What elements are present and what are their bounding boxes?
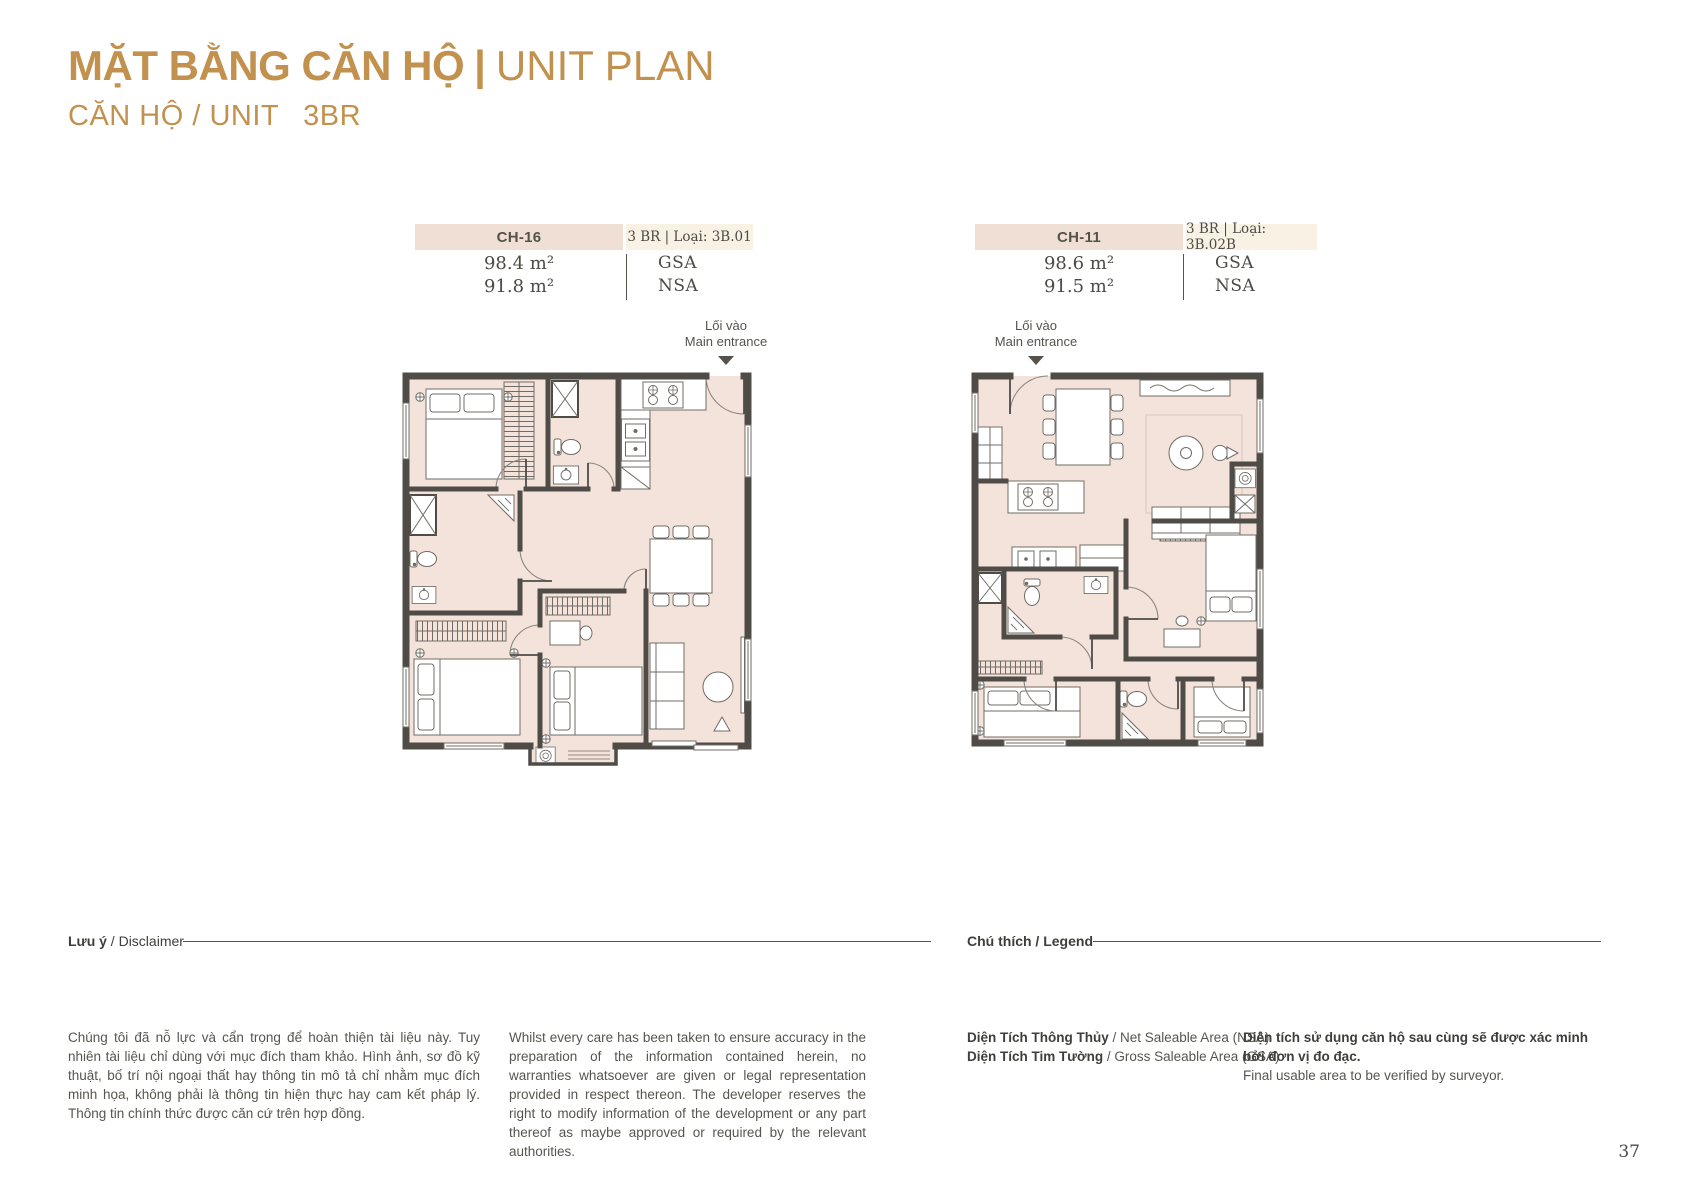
legend-item-gsa-bold: Diện Tích Tim Tường [967, 1049, 1103, 1064]
page-number: 37 [1600, 1142, 1640, 1162]
legend-heading: Chú thích / Legend [967, 933, 1093, 949]
floor-plan-ch11 [968, 369, 1268, 751]
divider [626, 254, 627, 300]
page-subtitle: CĂN HỘ / UNIT3BR [68, 100, 361, 133]
unit-code: CH-11 [975, 224, 1183, 250]
area-labels: GSA NSA [658, 252, 698, 298]
entrance-label-ch16: Lối vào Main entrance [646, 318, 806, 365]
legend-rule [1093, 941, 1601, 942]
gsa-value: 98.4 m² [415, 252, 623, 275]
nsa-value: 91.5 m² [975, 275, 1183, 298]
disclaimer-heading-rest: / Disclaimer [107, 933, 184, 949]
legend-note-rest: Final usable area to be verified by surv… [1243, 1066, 1613, 1085]
disclaimer-rule [183, 941, 931, 942]
legend-note-bold: Diện tích sử dụng căn hộ sau cùng sẽ đượ… [1243, 1028, 1613, 1066]
entrance-en: Main entrance [956, 334, 1116, 350]
entrance-vi: Lối vào [956, 318, 1116, 334]
nsa-label: NSA [1215, 275, 1255, 298]
area-values: 98.6 m² 91.5 m² [975, 252, 1183, 298]
entrance-label-ch11: Lối vào Main entrance [956, 318, 1116, 365]
gsa-value: 98.6 m² [975, 252, 1183, 275]
legend-item-nsa-bold: Diện Tích Thông Thủy [967, 1030, 1109, 1045]
nsa-label: NSA [658, 275, 698, 298]
title-english: UNIT PLAN [496, 42, 715, 89]
disclaimer-text-vi: Chúng tôi đã nỗ lực và cẩn trọng để hoàn… [68, 1028, 480, 1123]
legend-item-gsa: Diện Tích Tim Tường / Gross Saleable Are… [967, 1047, 1279, 1066]
unit-type: 3 BR | Loại: 3B.02B [1186, 224, 1317, 250]
entrance-arrow-icon [1028, 356, 1044, 365]
legend-items: Diện Tích Thông Thủy / Net Saleable Area… [967, 1028, 1279, 1066]
unit-type: 3 BR | Loại: 3B.01 [626, 224, 753, 250]
brochure-page: MẶT BẰNG CĂN HỘ|UNIT PLAN CĂN HỘ / UNIT3… [0, 0, 1683, 1190]
disclaimer-text-en: Whilst every care has been taken to ensu… [509, 1028, 866, 1161]
title-separator: | [474, 42, 486, 89]
gsa-label: GSA [1215, 252, 1255, 275]
page-title: MẶT BẰNG CĂN HỘ|UNIT PLAN [68, 44, 715, 88]
unit-header-ch16: CH-16 3 BR | Loại: 3B.01 [415, 224, 753, 250]
entrance-en: Main entrance [646, 334, 806, 350]
gsa-label: GSA [658, 252, 698, 275]
entrance-vi: Lối vào [646, 318, 806, 334]
unit-header-ch11: CH-11 3 BR | Loại: 3B.02B [975, 224, 1317, 250]
subtitle-value: 3BR [303, 100, 361, 132]
legend-note: Diện tích sử dụng căn hộ sau cùng sẽ đượ… [1243, 1028, 1613, 1085]
subtitle-label: CĂN HỘ / UNIT [68, 100, 279, 132]
disclaimer-heading: Lưu ý / Disclaimer [68, 933, 184, 949]
divider [1183, 254, 1184, 300]
title-vietnamese: MẶT BẰNG CĂN HỘ [68, 42, 464, 89]
area-values: 98.4 m² 91.8 m² [415, 252, 623, 298]
disclaimer-heading-bold: Lưu ý [68, 933, 107, 949]
unit-code: CH-16 [415, 224, 623, 250]
legend-item-nsa: Diện Tích Thông Thủy / Net Saleable Area… [967, 1028, 1279, 1047]
nsa-value: 91.8 m² [415, 275, 623, 298]
floor-plan-ch16 [400, 369, 752, 769]
area-labels: GSA NSA [1215, 252, 1255, 298]
entrance-arrow-icon [718, 356, 734, 365]
